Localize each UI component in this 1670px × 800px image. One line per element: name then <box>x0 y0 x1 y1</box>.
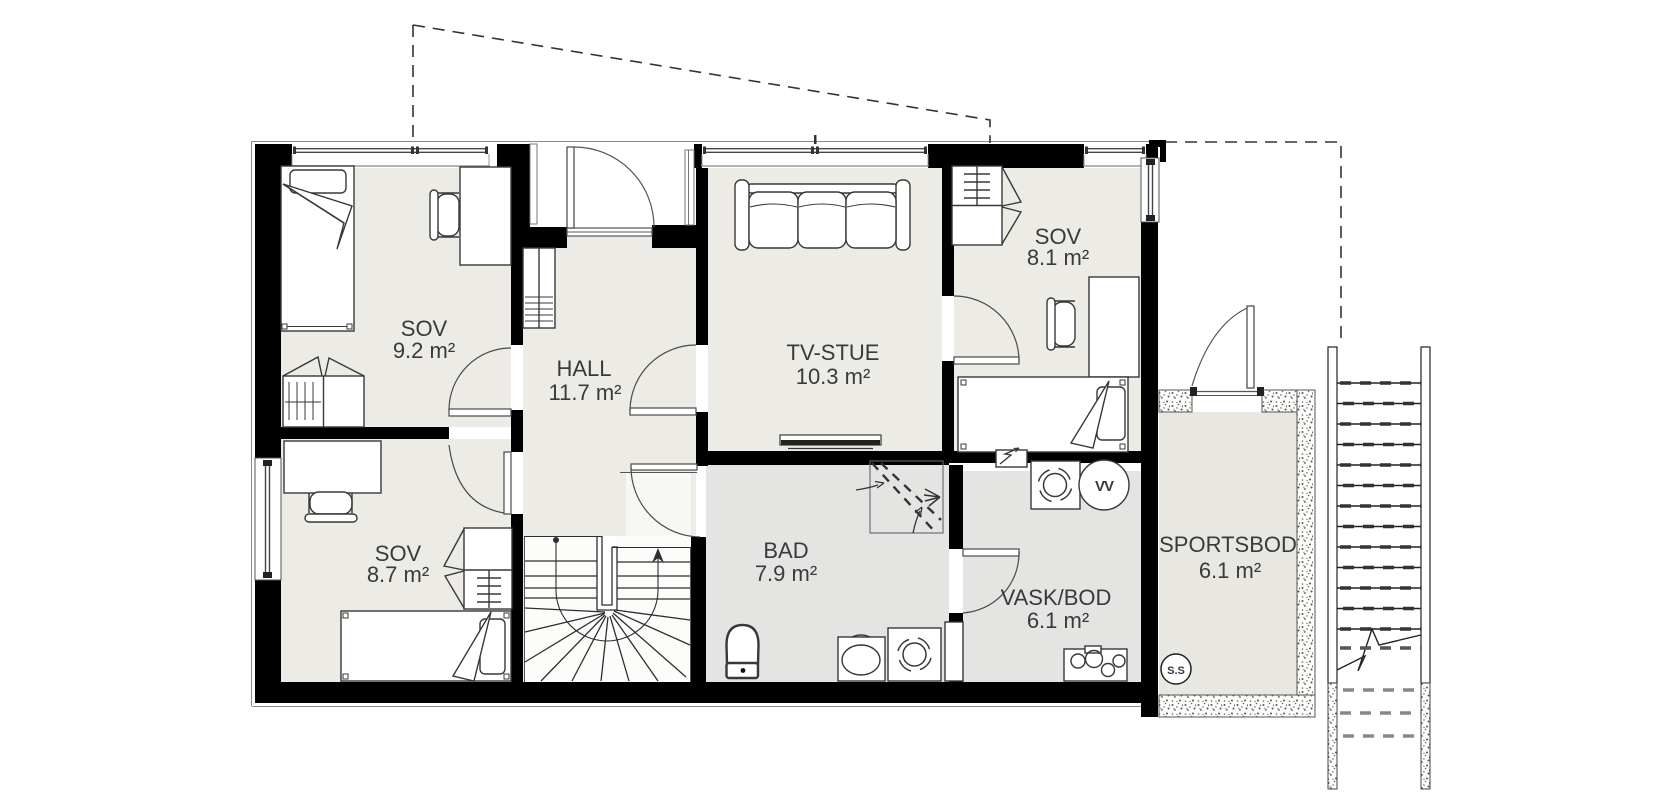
svg-text:S.S: S.S <box>1167 665 1185 677</box>
svg-text:7.9 m²: 7.9 m² <box>755 561 817 586</box>
svg-text:SPORTSBOD: SPORTSBOD <box>1159 532 1297 557</box>
svg-text:6.1 m²: 6.1 m² <box>1027 608 1089 633</box>
svg-text:8.7 m²: 8.7 m² <box>367 562 429 587</box>
svg-text:10.3 m²: 10.3 m² <box>796 364 871 389</box>
svg-text:VASK/BOD: VASK/BOD <box>1001 585 1112 610</box>
svg-text:BAD: BAD <box>763 538 808 563</box>
svg-text:6.1 m²: 6.1 m² <box>1199 558 1261 583</box>
svg-text:8.1 m²: 8.1 m² <box>1027 245 1089 270</box>
svg-text:HALL: HALL <box>556 356 611 381</box>
svg-text:TV-STUE: TV-STUE <box>787 340 880 365</box>
svg-text:11.7 m²: 11.7 m² <box>549 380 622 405</box>
svg-text:VV: VV <box>1095 478 1114 495</box>
svg-text:9.2 m²: 9.2 m² <box>393 338 455 363</box>
